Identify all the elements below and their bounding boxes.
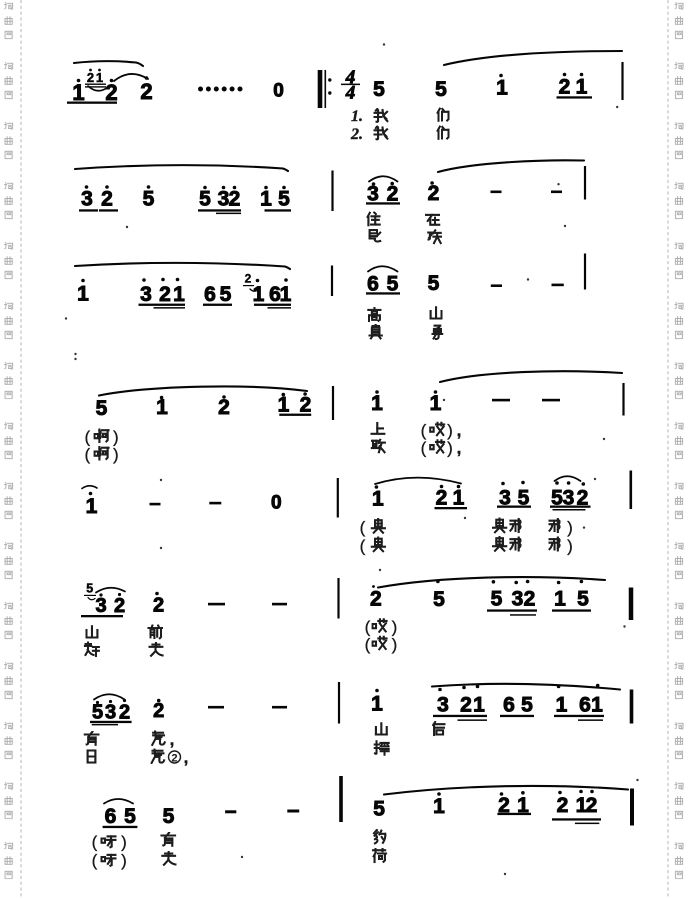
svg-text:1: 1 (371, 392, 383, 415)
svg-text:2: 2 (370, 588, 382, 611)
svg-text:5: 5 (163, 805, 175, 828)
svg-text:,: , (457, 439, 462, 458)
svg-text:2: 2 (159, 283, 171, 306)
svg-text:1: 1 (72, 80, 84, 105)
svg-text:(: ( (84, 445, 90, 464)
svg-text:5: 5 (577, 588, 589, 611)
svg-text:2: 2 (171, 752, 177, 764)
svg-text:): ) (567, 537, 573, 556)
svg-text:(: ( (360, 518, 366, 537)
svg-text:2: 2 (300, 394, 312, 417)
svg-text:2: 2 (586, 794, 598, 817)
svg-text:(: ( (365, 618, 371, 637)
svg-text:,: , (170, 730, 175, 749)
svg-text:6: 6 (204, 283, 216, 306)
svg-text:): ) (121, 851, 127, 870)
svg-text:3: 3 (81, 188, 93, 211)
svg-text:1: 1 (453, 487, 465, 510)
svg-text:3: 3 (95, 595, 106, 617)
svg-text:5: 5 (433, 588, 445, 611)
svg-text:3: 3 (218, 188, 230, 211)
svg-text:5: 5 (428, 272, 440, 295)
svg-text:2: 2 (153, 700, 164, 722)
svg-text:): ) (392, 618, 398, 637)
svg-text:6: 6 (579, 694, 591, 717)
svg-text:(: ( (84, 428, 90, 447)
svg-text:1: 1 (278, 394, 290, 417)
svg-text:6: 6 (367, 273, 379, 296)
svg-text:5: 5 (373, 798, 385, 821)
svg-text:2: 2 (559, 76, 571, 99)
svg-text:1: 1 (576, 76, 588, 99)
svg-text:2: 2 (114, 595, 125, 617)
svg-text:1: 1 (77, 283, 89, 306)
svg-text:5: 5 (143, 188, 155, 211)
svg-text:1: 1 (554, 588, 566, 611)
svg-text:2: 2 (557, 794, 569, 817)
svg-text:2: 2 (87, 70, 94, 85)
svg-text:1: 1 (556, 694, 568, 717)
svg-text:3: 3 (105, 702, 116, 724)
svg-text:1: 1 (280, 283, 292, 306)
svg-text:(: ( (92, 833, 98, 852)
svg-text:): ) (121, 833, 127, 852)
svg-text:6: 6 (503, 694, 515, 717)
svg-text:): ) (392, 635, 398, 654)
svg-text:1: 1 (372, 488, 384, 511)
svg-text:5: 5 (435, 78, 447, 101)
svg-text:1: 1 (433, 795, 445, 818)
svg-text:5: 5 (92, 702, 103, 724)
svg-text:2: 2 (428, 182, 440, 205)
svg-text:1: 1 (156, 396, 168, 419)
svg-text:5: 5 (199, 188, 211, 211)
svg-text:5: 5 (96, 397, 108, 420)
svg-text:0: 0 (273, 81, 284, 102)
svg-text:3: 3 (140, 283, 152, 306)
svg-text:1: 1 (260, 188, 272, 211)
svg-text:5: 5 (220, 283, 232, 306)
svg-text:(: ( (360, 537, 366, 556)
svg-text:(: ( (365, 635, 371, 654)
svg-text:2: 2 (229, 188, 241, 211)
svg-text:5: 5 (373, 78, 385, 101)
svg-text:5: 5 (278, 188, 290, 211)
svg-text:1: 1 (473, 694, 485, 717)
svg-text:1: 1 (96, 70, 103, 85)
svg-text:1: 1 (86, 495, 98, 518)
svg-text:2: 2 (101, 188, 113, 211)
svg-text:(: ( (421, 421, 427, 440)
svg-text:2: 2 (218, 396, 230, 419)
svg-text:0: 0 (271, 493, 282, 514)
svg-text:2: 2 (105, 80, 117, 105)
svg-text:4: 4 (345, 83, 356, 104)
svg-text:,: , (457, 421, 462, 440)
svg-text:1: 1 (371, 693, 383, 716)
svg-text:2: 2 (245, 272, 252, 286)
svg-text:5: 5 (124, 805, 136, 828)
svg-text:(: ( (421, 439, 427, 458)
svg-text:6: 6 (105, 805, 117, 828)
svg-text:2: 2 (436, 487, 448, 510)
svg-text:2: 2 (387, 183, 399, 206)
svg-text:2: 2 (119, 702, 130, 724)
svg-text:1: 1 (496, 77, 508, 100)
svg-text:): ) (447, 421, 453, 440)
svg-text:): ) (113, 428, 119, 447)
svg-text:5: 5 (387, 273, 399, 296)
svg-text:2: 2 (153, 595, 164, 617)
svg-text:(: ( (92, 851, 98, 870)
svg-text:2: 2 (140, 79, 152, 104)
svg-text:): ) (567, 518, 573, 537)
svg-text:2: 2 (460, 694, 472, 717)
svg-text:3: 3 (367, 183, 379, 206)
svg-text:5: 5 (491, 588, 503, 611)
svg-text:1: 1 (253, 283, 265, 306)
svg-text:5: 5 (86, 582, 93, 596)
svg-text:): ) (113, 445, 119, 464)
svg-text:5: 5 (521, 694, 533, 717)
svg-text:,: , (184, 748, 189, 767)
svg-text:1: 1 (591, 694, 603, 717)
svg-text:3: 3 (437, 694, 449, 717)
svg-text:1: 1 (430, 392, 442, 415)
svg-text:): ) (447, 439, 453, 458)
svg-text:1: 1 (173, 283, 185, 306)
svg-text:3: 3 (512, 588, 524, 611)
svg-text:2.: 2. (350, 126, 363, 143)
svg-text:2: 2 (524, 588, 536, 611)
svg-text:1.: 1. (351, 108, 363, 125)
